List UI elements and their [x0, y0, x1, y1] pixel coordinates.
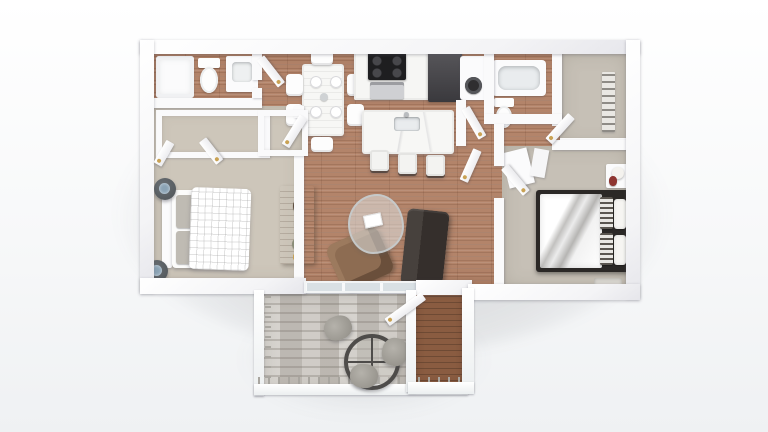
interior-wall [152, 98, 262, 108]
cooktop-stove [368, 52, 406, 80]
railing-balusters [265, 296, 271, 388]
interior-wall [484, 114, 562, 124]
sliding-glass-door [304, 281, 418, 293]
entry-floor [414, 290, 466, 386]
bar-stool [370, 150, 389, 171]
island-faucet [404, 112, 409, 117]
vanity-sink [232, 62, 252, 82]
toilet-bowl [200, 67, 218, 93]
interior-wall [494, 124, 504, 166]
quilted-duvet [189, 187, 252, 271]
exterior-wall-bottom-right [468, 284, 640, 300]
bed-duvet-gray-white [540, 194, 602, 268]
sofa [400, 208, 450, 288]
interior-wall [494, 198, 504, 284]
bar-stool [426, 155, 445, 176]
entry-bottom-wall [408, 382, 474, 394]
exterior-wall-left [140, 40, 154, 292]
dining-chair [311, 137, 333, 152]
bed-headboard [162, 190, 172, 268]
refrigerator [428, 50, 462, 102]
exterior-wall-bottom-left [140, 278, 306, 294]
interior-wall [456, 100, 466, 146]
striped-pillow [600, 233, 613, 265]
interior-wall [552, 140, 628, 150]
interior-wall [484, 52, 494, 122]
interior-wall [252, 88, 262, 98]
place-setting [310, 76, 322, 88]
patio-chair [349, 363, 379, 389]
shower-stall [156, 56, 194, 98]
oven-front [370, 82, 404, 99]
exterior-wall-right [626, 40, 640, 298]
bathtub-basin [498, 66, 540, 90]
place-setting [330, 106, 342, 118]
floorplan-render [0, 0, 768, 432]
blue-lamp [159, 183, 170, 194]
table-centerpiece [320, 93, 328, 101]
place-setting [310, 106, 322, 118]
interior-wall [294, 152, 304, 284]
dining-chair [286, 74, 303, 96]
white-pillow [614, 235, 626, 265]
island-sink [394, 117, 420, 131]
place-setting [330, 76, 342, 88]
striped-pillow [600, 197, 613, 229]
bar-stool [398, 153, 417, 174]
closet-shelf-rack [602, 72, 615, 132]
closet-2-carpet [560, 52, 628, 146]
red-lamp [609, 176, 617, 186]
washer-door [465, 77, 482, 94]
white-pillow [614, 199, 626, 229]
entry-right-wall [462, 288, 474, 392]
exterior-wall-top [140, 40, 640, 54]
